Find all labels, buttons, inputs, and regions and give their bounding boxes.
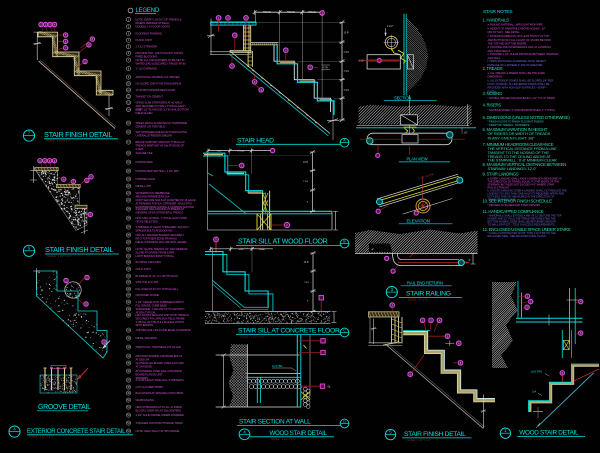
svg-text:7 3/4: 7 3/4 (344, 71, 350, 73)
svg-text:BOARD FLANGE UNIT: BOARD FLANGE UNIT (136, 372, 163, 376)
svg-text:PLANK JOINT: PLANK JOINT (136, 38, 153, 42)
svg-text:TREAD: TREAD (287, 11, 295, 14)
svg-text:1. HANDRAILS: 1. HANDRAILS (483, 17, 510, 22)
svg-text:C: C (343, 329, 346, 333)
svg-text:* MAXIMUM RISER: 8" AND MINIMU: * MAXIMUM RISER: 8" AND MINIMUM RISER: 4… (488, 108, 556, 112)
svg-text:AND SECURED TO WALL TYPICAL EA: AND SECURED TO WALL TYPICAL EACH (136, 104, 186, 108)
svg-text:SUBGRADE - FOLLOW UP TO GROWTH: SUBGRADE - FOLLOW UP TO GROWTH (136, 307, 185, 311)
svg-text:TYPICAL OF THE FULL FLANGE JOI: TYPICAL OF THE FULL FLANGE JOINTS (136, 320, 185, 324)
svg-text:LATERAL STRINGER SIMILAR: LATERAL STRINGER SIMILAR (136, 133, 172, 137)
svg-text:CEMENT ON THE FIELD: CEMENT ON THE FIELD (136, 124, 165, 128)
svg-text:a. RAILING MATERIAL : WROUGHT: a. RAILING MATERIAL : WROUGHT IRON PIPE (488, 23, 544, 27)
svg-text:TREAD: TREAD (308, 11, 316, 14)
svg-text:FIELD GLUED: FIELD GLUED (136, 111, 153, 115)
svg-text:STAIR FINISH DETAIL: STAIR FINISH DETAIL (44, 130, 112, 139)
svg-text:FILL OVER AT #4 (TO TYPICALS)(: FILL OVER AT #4 (TO TYPICALS)(L) (136, 287, 178, 291)
svg-text:STAIR SECTION AT WALL: STAIR SECTION AT WALL (239, 418, 311, 425)
svg-text:RAIL END RETURN: RAIL END RETURN (407, 280, 443, 285)
svg-text:STAIR FINISH DETAIL: STAIR FINISH DETAIL (45, 245, 113, 254)
svg-text:MIDSPAN OF EA STRINGER & TREAD: MIDSPAN OF EA STRINGER & TREADS (136, 210, 184, 214)
svg-text:* REGARD AS SCHEDULED STAIR FI: * REGARD AS SCHEDULED STAIR FINISHES (488, 203, 541, 207)
svg-text:SCALE : 1 1/2"= 1'-0": SCALE : 1 1/2"= 1'-0" (271, 437, 296, 441)
svg-text:GYP. BD.: GYP. BD. (272, 364, 283, 368)
svg-text:AT END 3/4: AT END 3/4 (136, 357, 150, 361)
svg-text:TREAD: TREAD (263, 11, 271, 14)
svg-text:R&R: R&R (217, 151, 222, 153)
svg-text:WATERPROOF MEMBRANE: WATERPROOF MEMBRANE (136, 191, 170, 195)
svg-text:WOOD STAIR DETAIL: WOOD STAIR DETAIL (270, 430, 328, 437)
svg-text:e. PROVIDE 1 1/2" CLEAR DISTAN: e. PROVIDE 1 1/2" CLEAR DISTANCE BETWEEN… (488, 52, 560, 56)
svg-text:NO SLOPE JOINT FOR TONGUE/FILM: NO SLOPE JOINT FOR TONGUE/FILM (136, 82, 183, 86)
svg-text:1x10 TRD: 1x10 TRD (531, 370, 543, 374)
svg-text:FILL GRADE, CURB BASE: FILL GRADE, CURB BASE (136, 303, 168, 307)
svg-text:4. RISERS: 4. RISERS (483, 103, 502, 108)
svg-text:MIN 34" MAX - SEE DETAIL: MIN 34" MAX - SEE DETAIL (488, 30, 521, 34)
svg-text:ADDITIONAL FRAMING 2x4 SPACER: ADDITIONAL FRAMING 2x4 SPACER (136, 75, 180, 79)
svg-text:D: D (343, 420, 346, 424)
svg-text:COLD JOINT: COLD JOINT (136, 267, 152, 271)
svg-text:NEW STRINGERS AT 2X ALL 2x RIS: NEW STRINGERS AT 2X ALL 2x RISER (136, 405, 182, 409)
svg-text:WOOD STAIR DETAIL: WOOD STAIR DETAIL (519, 430, 579, 437)
svg-text:3. NOSING: 3. NOSING (483, 91, 503, 96)
svg-text:NOTE: SLOPE TREADS 1/4" AND MI: NOTE: SLOPE TREADS 1/4" AND MINIMUM (136, 247, 189, 251)
svg-text:STRINGER AT LEAST THREADED. EQ: STRINGER AT LEAST THREADED. EQUALLY (136, 225, 190, 229)
svg-text:STAIR RAILING: STAIR RAILING (406, 290, 451, 297)
svg-text:a. ALL TREADS & RISERS SHALL B: a. ALL TREADS & RISERS SHALL BE THE SAME (488, 71, 546, 75)
svg-text:SCALE : 1 1/2"= 1'-0": SCALE : 1 1/2"= 1'-0" (46, 139, 71, 143)
svg-text:1 1/2: 1 1/2 (359, 61, 365, 63)
svg-text:d. PROVIDE AND INTERMEDIATE RA: d. PROVIDE AND INTERMEDIATE RAIL AT LAND… (488, 45, 552, 49)
svg-text:NOTE: ALL TRD & RISERS TO BE S: NOTE: ALL TRD & RISERS TO BE SET IN (136, 58, 185, 62)
svg-text:f. OPEN SECTIONAL GUARDRAIL MU: f. OPEN SECTIONAL GUARDRAIL MUST REJECT (488, 59, 547, 63)
svg-text:SECTION: SECTION (394, 95, 411, 100)
svg-text:b. ALL EXTERIOR STAIRS SHALL B: b. ALL EXTERIOR STAIRS SHALL BE SLOPED 1… (488, 79, 554, 83)
svg-text:2x4 PARALLEL BOARD OVER 4d PLA: 2x4 PARALLEL BOARD OVER 4d PLANK (136, 361, 185, 365)
svg-text:WITH EDGING: WITH EDGING (136, 323, 154, 327)
svg-text:MORTAR BED SETTING - 1 1/2" MI: MORTAR BED SETTING - 1 1/2" MIN (136, 169, 179, 173)
svg-text:AT 2X4 EDGE: AT 2X4 EDGE (136, 364, 153, 368)
svg-text:EXTERIOR CONCRETE STAIR DETAIL: EXTERIOR CONCRETE STAIR DETAIL (27, 429, 126, 435)
svg-text:BALUSTERS AT SPACING GYPS TRIM: BALUSTERS AT SPACING GYPS TRIMS (136, 391, 184, 395)
svg-text:WHITE LEAD & SECURELY NAILED W: WHITE LEAD & SECURELY NAILED W/ 8d (136, 61, 187, 65)
svg-text:SLOPING GROOVES: SLOPING GROOVES (136, 260, 162, 264)
svg-text:METAL SPACERS: METAL SPACERS (136, 336, 158, 340)
svg-text:4": 4" (372, 248, 375, 252)
svg-text:PROVIDED WITH NON-SLIP SURFACE: PROVIDED WITH NON-SLIP SURFACES - VERIFY (488, 86, 548, 90)
svg-text:BRACE SUPPORT SPACING TYPICAL: BRACE SUPPORT SPACING TYPICAL AT (136, 140, 186, 144)
svg-text:METAL LATH: METAL LATH (136, 184, 152, 188)
svg-text:FINISHED FACE: FINISHED FACE (136, 177, 156, 181)
svg-text:10 R: 10 R (303, 162, 308, 164)
svg-text:AT HANDRAIL OVER NAIL CONCRETE: AT HANDRAIL OVER NAIL CONCRETE (136, 369, 183, 373)
svg-text:AROUND PERIMETERS 2x4: AROUND PERIMETERS 2x4 (136, 194, 170, 198)
svg-text:TO WALL OR POST - TITLE 24 ACC: TO WALL OR POST - TITLE 24 ACCESS REQUIR… (488, 222, 555, 226)
svg-text:1 1/4" GRAVEL/TOP SUBBASE/COMP: 1 1/4" GRAVEL/TOP SUBBASE/COMPCT (136, 300, 185, 304)
svg-text:IN ANY GIVEN FLIGHT: 3/8": IN ANY GIVEN FLIGHT: 3/8" (488, 135, 536, 140)
svg-text:MORTAR BED: MORTAR BED (136, 160, 153, 164)
svg-text:7 3/4: 7 3/4 (344, 52, 350, 54)
svg-text:3": 3" (468, 259, 470, 262)
svg-text:JOINTED NAIL HOLD ONE EDGE CON: JOINTED NAIL HOLD ONE EDGE CONCRETE (136, 328, 191, 332)
svg-text:SPACED BOLTS AT BLOCKING: SPACED BOLTS AT BLOCKING (136, 228, 173, 232)
svg-text:2 X 12 STRINGER: 2 X 12 STRINGER (136, 45, 158, 49)
svg-text:SET STRINGER NAILED W/ TRANSLA: SET STRINGER NAILED W/ TRANSLATING (136, 130, 187, 134)
svg-text:SCALE : 1 1/2"= 1'-0": SCALE : 1 1/2"= 1'-0" (29, 435, 54, 439)
svg-text:NOTE: FIELD RALLY AT 95% FRAME: NOTE: FIELD RALLY AT 95% FRAME (136, 429, 180, 433)
svg-text:FOOT TO DRAIN. ALL EXTERIOR ST: FOOT TO DRAIN. ALL EXTERIOR STAIRS SHALL… (488, 82, 550, 86)
svg-text:#4 REBAR AT 12" O.C. BOTH WAYS: #4 REBAR AT 12" O.C. BOTH WAYS (136, 274, 179, 278)
svg-text:CONT 1/2" PLYWOOD CLT 4d NAIL: CONT 1/2" PLYWOOD CLT 4d NAIL BOTTOM (136, 108, 190, 112)
svg-text:AT FRAMING FOR EA. STRINGER. N: AT FRAMING FOR EA. STRINGER. NAILS INTO (136, 201, 192, 205)
svg-text:CONT SECURE NAILS AT QUARTER O: CONT SECURE NAILS AT QUARTER OF 16 GAGE (136, 198, 196, 202)
svg-text:1X STRIP FINISHED BED FLOOR: 1X STRIP FINISHED BED FLOOR (136, 88, 176, 92)
svg-text:STAGGER NAIL SPACING AT RISERS: STAGGER NAIL SPACING AT RISERS AT (136, 207, 185, 211)
svg-text:SLOPE AT GRADE FROM STAIR: SLOPE AT GRADE FROM STAIR (136, 250, 175, 254)
svg-text:SITE THE 2x4 UNIT: SITE THE 2x4 UNIT (136, 280, 159, 284)
svg-text:DOUBLE 2 X FLOOR JOISTS: DOUBLE 2 X FLOOR JOISTS (136, 25, 171, 29)
svg-text:PLAN VIEW: PLAN VIEW (407, 157, 428, 162)
svg-text:c. EXTEND HANDRAILS NOT LESS T: c. EXTEND HANDRAILS NOT LESS THAN 6" AT … (488, 34, 550, 38)
svg-text:LIGHT BROOM FINISH TYPICAL: LIGHT BROOM FINISH TYPICAL (136, 254, 175, 258)
svg-text:NON SKID NOSING - TYPICAL EACH: NON SKID NOSING - TYPICAL EACH STEP (136, 216, 188, 220)
svg-text:INTO TOP RISER EDGE FRAMING: INTO TOP RISER EDGE FRAMING (136, 236, 177, 240)
svg-text:SECURELY PIN: SPACING FIELD FR: SECURELY PIN: SPACING FIELD FRAME (136, 316, 186, 320)
svg-text:SQUARE TILE: SQUARE TILE (136, 151, 153, 155)
svg-text:THE TOP AND BOTTOM RISERS: THE TOP AND BOTTOM RISERS (488, 41, 527, 45)
svg-text:PROVIDE TRD. JOINT W/CONT CROS: PROVIDE TRD. JOINT W/CONT CROSS (136, 51, 184, 55)
svg-text:SCALE : 1 1/2"= 1'-0": SCALE : 1 1/2"= 1'-0" (239, 145, 264, 149)
svg-text:ANCHOR FRAMING AND BASE BOLTS: ANCHOR FRAMING AND BASE BOLTS (136, 354, 183, 358)
svg-text:7 3/4: 7 3/4 (304, 282, 310, 284)
svg-text:SCALE : 1 1/2"= 1'-0": SCALE : 1 1/2"= 1'-0" (47, 254, 72, 258)
svg-text:10 R: 10 R (344, 32, 349, 35)
svg-text:SCALE : 1 1/2"= 1'-0": SCALE : 1 1/2"= 1'-0" (407, 439, 431, 442)
svg-text:FLOORING FINISHED: FLOORING FINISHED (136, 31, 162, 35)
svg-text:TREAD: TREAD (237, 150, 245, 153)
svg-text:7 3/4: 7 3/4 (303, 181, 309, 183)
svg-text:1 1/2" SOLID FRAME UNDER COVER: 1 1/2" SOLID FRAME UNDER COVERED (136, 413, 184, 417)
svg-text:OR AS SELECTED: OR AS SELECTED (136, 219, 158, 223)
svg-text:FIELD CONCRETE 15% NATURAL GRA: FIELD CONCRETE 15% NATURAL GRADE (136, 240, 187, 244)
svg-text:SCALE : 1 1/2"= 1'-0": SCALE : 1 1/2"= 1'-0" (524, 438, 548, 441)
svg-text:FIRED BLOCKING: FIRED BLOCKING (136, 55, 158, 59)
svg-text:THINSET ON CEMENT: THINSET ON CEMENT (136, 94, 164, 98)
svg-text:STAIR FINISH DETAIL: STAIR FINISH DETAIL (404, 431, 466, 438)
svg-text:GRAB RAILING: GRAB RAILING (136, 398, 154, 402)
svg-text:2 1/2": 2 1/2" (462, 132, 468, 135)
svg-text:STAIR SILL AT CONCRETE FLOOR: STAIR SILL AT CONCRETE FLOOR (238, 327, 340, 334)
svg-text:SCALE : 3"= 1'-0": SCALE : 3"= 1'-0" (408, 298, 428, 301)
svg-text:4 7/8: 4 7/8 (323, 67, 329, 69)
svg-text:ELEVATION: ELEVATION (407, 219, 430, 224)
svg-text:3 COATS EACH SIDE FULL STRINGE: 3 COATS EACH SIDE FULL STRINGERS (136, 378, 184, 382)
svg-text:R&R: R&R (239, 249, 244, 251)
svg-text:2. TREADS: 2. TREADS (483, 66, 503, 71)
svg-text:NOTE: EVERY LAYOUT OF TREADS &: NOTE: EVERY LAYOUT OF TREADS & (136, 17, 182, 21)
svg-text:AND BOTTOM OF FULL FLIGHT OF S: AND BOTTOM OF FULL FLIGHT OF STAIRS BEYO… (488, 38, 552, 42)
svg-text:10. SEE INTERIOR FINISH SCHEDU: 10. SEE INTERIOR FINISH SCHEDULE (483, 199, 553, 204)
svg-text:GYP FLOORED TRIMS: GYP FLOORED TRIMS (136, 385, 164, 389)
svg-text:STAGGER JOINTS BOTH EDGE TRIMS: STAGGER JOINTS BOTH EDGE TRIMS (136, 421, 183, 425)
svg-text:NAIL JOINTS SEALANT AND STOP T: NAIL JOINTS SEALANT AND STOP TREAD & (136, 313, 190, 317)
svg-text:TREADS MIDPOINT W/ 16d AT EDGE: TREADS MIDPOINT W/ 16d AT EDGE OF (136, 143, 185, 147)
svg-text:* NOSING PROJECTION MAXIMUM 1: * NOSING PROJECTION MAXIMUM 1 1/2" TYP. … (488, 96, 555, 100)
svg-text:5. DIMENSIONS (UNLESS NOTED OT: 5. DIMENSIONS (UNLESS NOTED OTHERWISE) (483, 115, 571, 120)
svg-text:7 3/4: 7 3/4 (344, 90, 350, 92)
svg-text:* FINISH FLOOR TO FINISH FLOOR: * FINISH FLOOR TO FINISH FLOOR AT RISERS (488, 120, 544, 124)
svg-text:STAIR: STAIR (136, 147, 144, 151)
svg-text:STAIR NOTES: STAIR NOTES (483, 9, 512, 15)
svg-text:9. STAIR LANDINGS: 9. STAIR LANDINGS (483, 171, 519, 176)
svg-text:SHEET METAL FLASHING NO HARDWA: SHEET METAL FLASHING NO HARDWARE (136, 121, 188, 125)
svg-text:BLOCKS OVER W/2 AT 16d CENTERS: BLOCKS OVER W/2 AT 16d CENTERS (136, 408, 182, 412)
svg-text:2 1/2": 2 1/2" (387, 25, 394, 28)
svg-text:SCALE : 1 1/2"= 1'-0": SCALE : 1 1/2"= 1'-0" (240, 335, 265, 339)
svg-text:1" x13 CARRIAGE: 1" x13 CARRIAGE (136, 67, 158, 71)
svg-text:TREAD: TREAD (258, 248, 266, 251)
svg-text:TREAT FULL THICKNESS 2X2 FILLE: TREAT FULL THICKNESS 2X2 FILLED (136, 345, 181, 349)
svg-text:ENCLOSED SIDE - SEE ARCHITECTU: ENCLOSED SIDE - SEE ARCHITECTURAL PLANS (488, 234, 546, 238)
svg-text:DIMENSION: DIMENSION (488, 75, 503, 79)
svg-text:RISERS VERIFIED AT FIELD: RISERS VERIFIED AT FIELD (136, 21, 170, 25)
svg-text:10 R: 10 R (304, 262, 309, 264)
svg-text:CROWNED FRAME: CROWNED FRAME (136, 293, 160, 297)
svg-text:GROOVE DETAIL: GROOVE DETAIL (38, 404, 91, 411)
svg-text:STAIR SILL AT WOOD FLOOR: STAIR SILL AT WOOD FLOOR (238, 238, 328, 245)
svg-text:GRIND SLAB STRINGERS AT 4d NAI: GRIND SLAB STRINGERS AT 4d NAILS (136, 101, 183, 105)
svg-text:NAIL ALL HANGER BOARDS SECUREL: NAIL ALL HANGER BOARDS SECURELY (136, 233, 185, 237)
svg-text:b. HEIGHT OF HANDRAILS ABOVE N: b. HEIGHT OF HANDRAILS ABOVE NOSING : 30… (488, 27, 546, 31)
svg-text:STAIR HEAD: STAIR HEAD (237, 137, 274, 144)
svg-text:2x4: 2x4 (532, 389, 537, 393)
